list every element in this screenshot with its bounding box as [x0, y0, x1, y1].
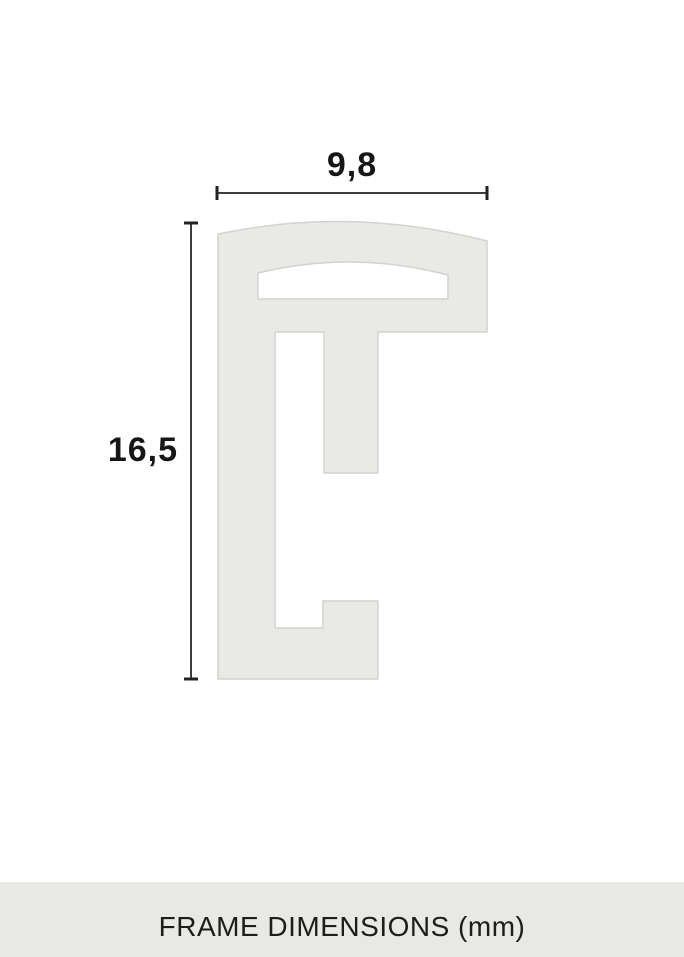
height-dimension-line [184, 223, 198, 679]
footer-caption: FRAME DIMENSIONS (mm) [159, 911, 526, 942]
height-dimension-value: 16,5 [62, 433, 178, 467]
footer-caption-bar: FRAME DIMENSIONS (mm) [0, 882, 684, 957]
frame-dimensions-diagram: 9,8 16,5 FRAME DIMENSIONS (mm) [0, 0, 684, 957]
profile-diagram-canvas [0, 0, 684, 957]
width-dimension-line [217, 186, 487, 200]
frame-profile-shape [218, 222, 487, 679]
width-dimension-value: 9,8 [217, 148, 487, 182]
